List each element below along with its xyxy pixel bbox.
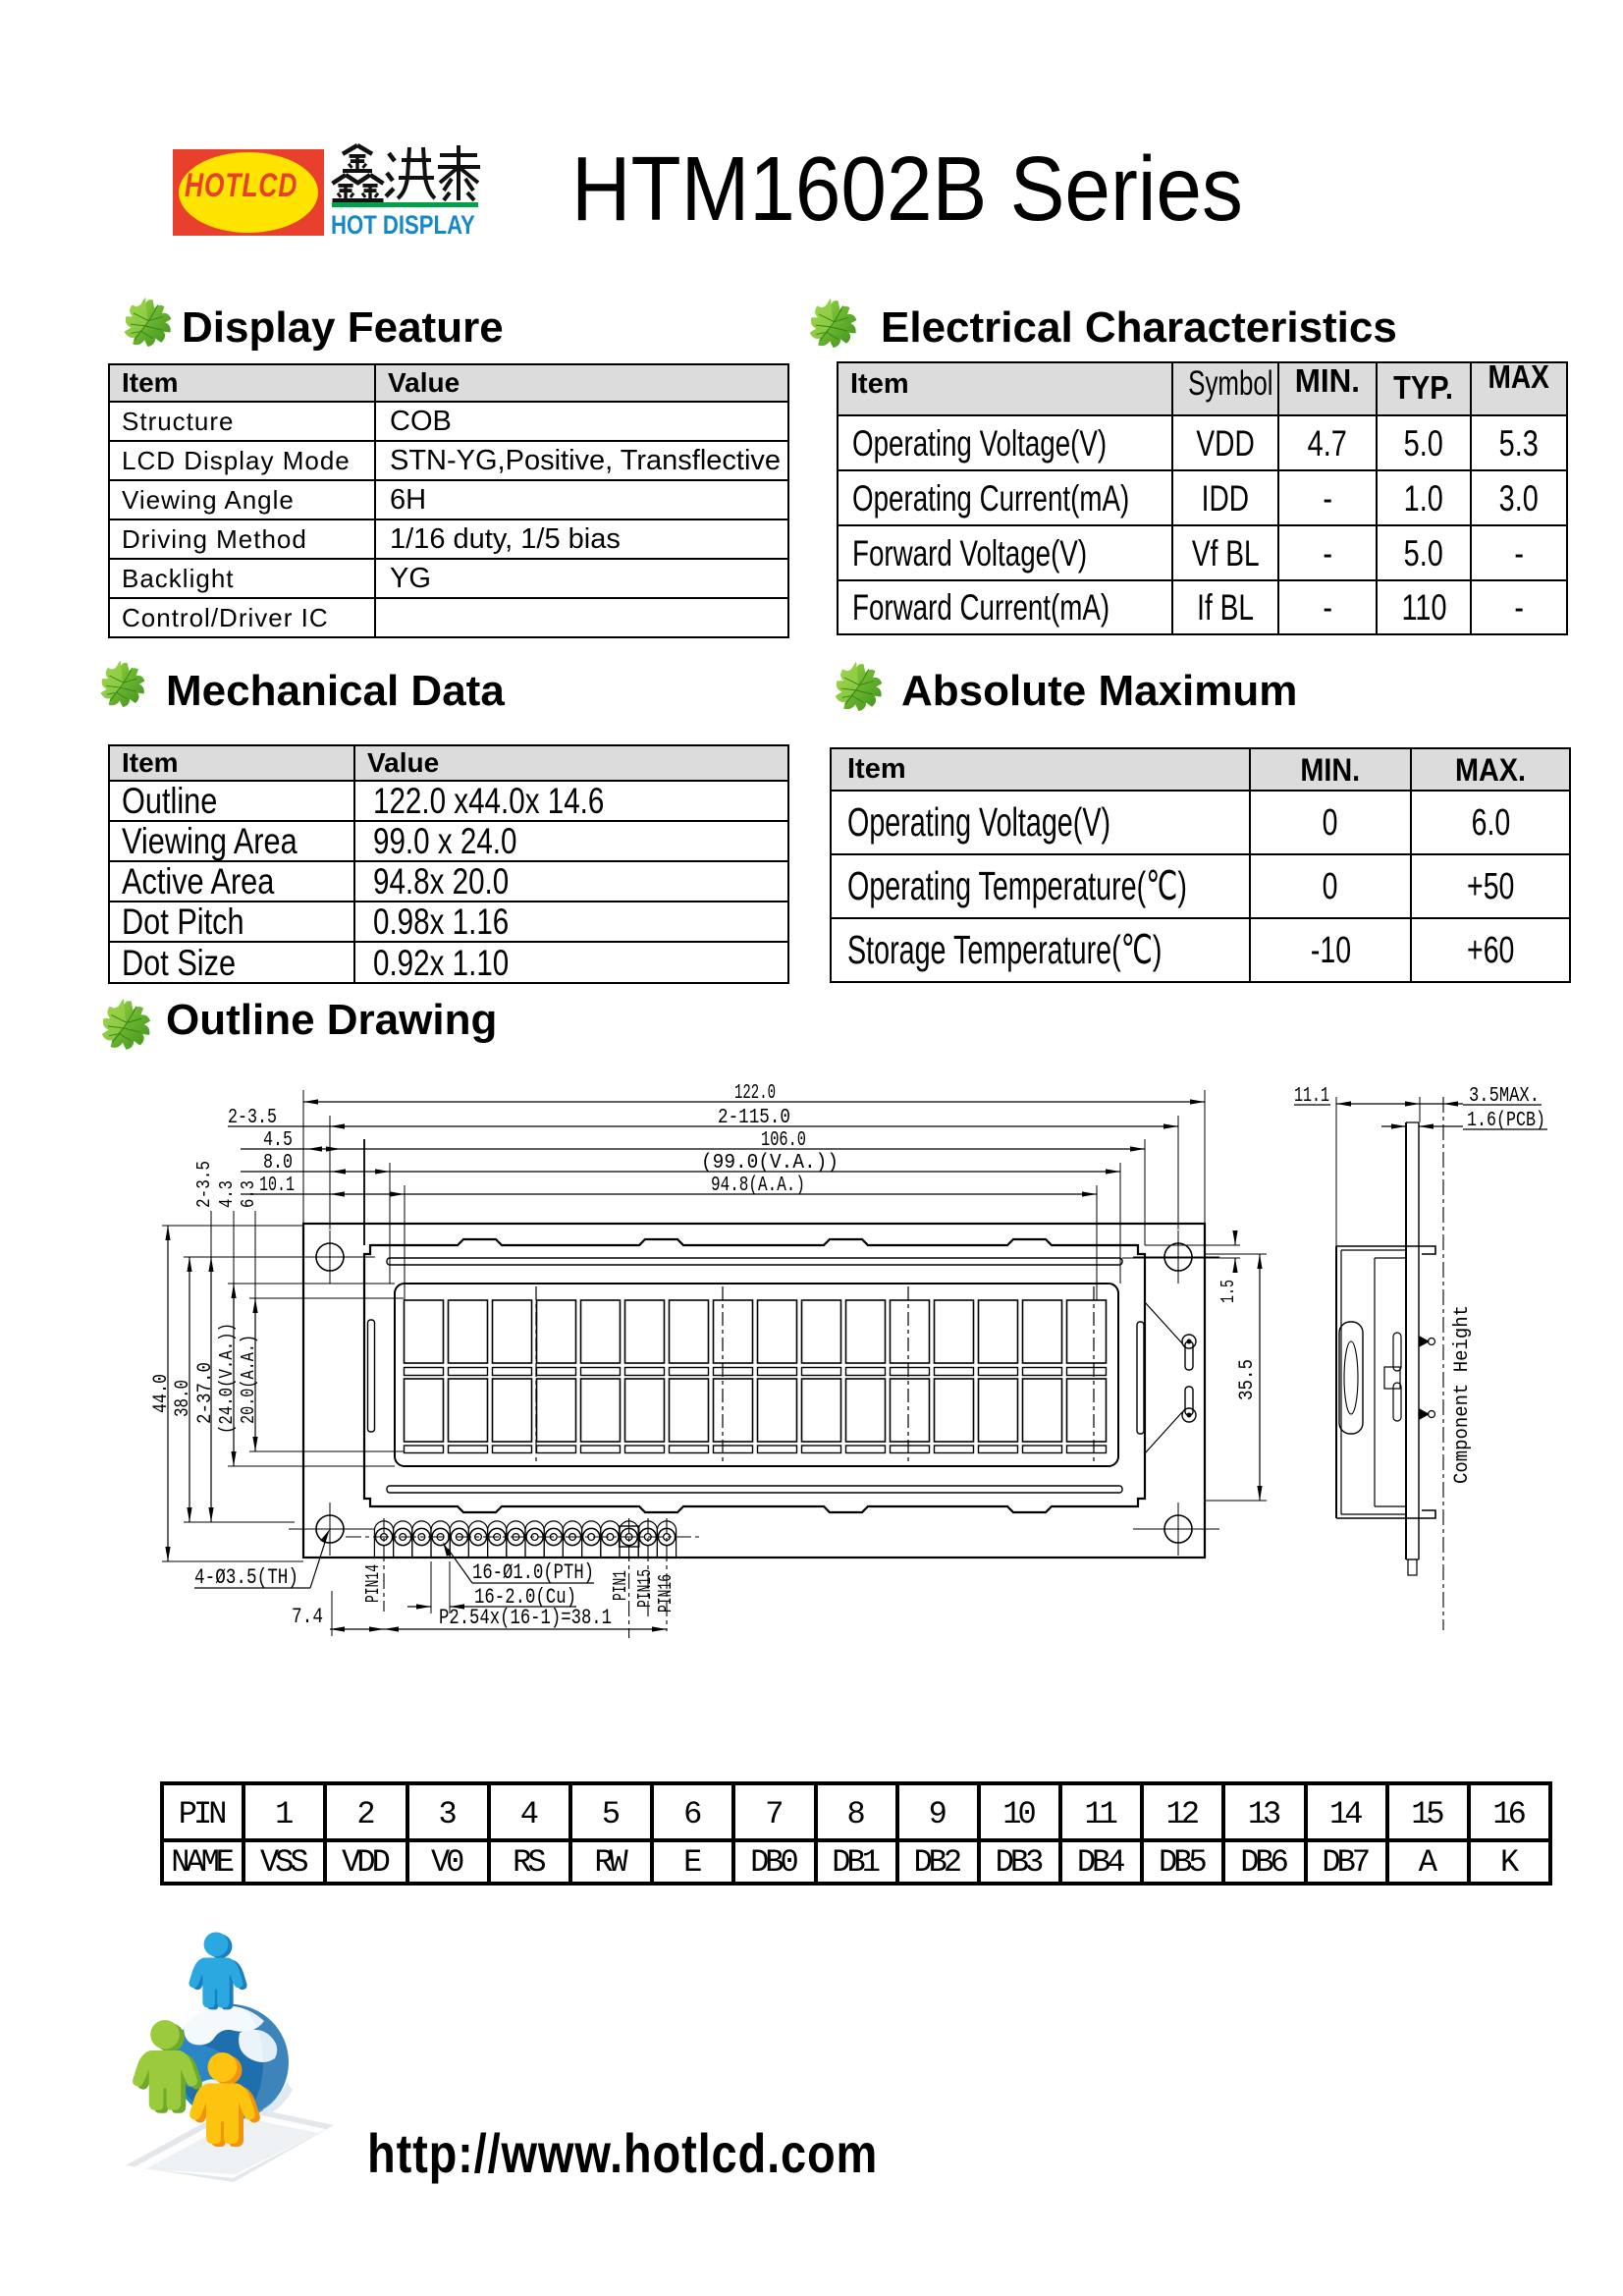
- svg-text:(24.0(V.A.)): (24.0(V.A.)): [216, 1323, 238, 1434]
- svg-text:16-Ø1.0(PTH): 16-Ø1.0(PTH): [472, 1560, 594, 1585]
- svg-text:P2.54x(16-1)=38.1: P2.54x(16-1)=38.1: [439, 1606, 612, 1630]
- svg-text:2-3.5: 2-3.5: [228, 1107, 277, 1129]
- svg-text:44.0: 44.0: [150, 1374, 173, 1413]
- svg-text:20.0(A.A.): 20.0(A.A.): [238, 1335, 259, 1424]
- svg-text:1.5: 1.5: [1217, 1280, 1239, 1303]
- svg-text:PIN15: PIN15: [634, 1569, 656, 1608]
- svg-text:38.0: 38.0: [172, 1380, 194, 1417]
- svg-text:2-3.5: 2-3.5: [193, 1161, 215, 1208]
- svg-text:Component Height: Component Height: [1451, 1305, 1474, 1484]
- svg-text:94.8(A.A.): 94.8(A.A.): [711, 1175, 805, 1197]
- svg-text:4.3: 4.3: [216, 1180, 238, 1208]
- svg-text:8.0: 8.0: [263, 1152, 293, 1175]
- svg-text:PIN16: PIN16: [655, 1574, 676, 1613]
- svg-text:122.0: 122.0: [734, 1082, 776, 1105]
- svg-text:(99.0(V.A.)): (99.0(V.A.)): [701, 1152, 839, 1175]
- svg-text:35.5: 35.5: [1236, 1359, 1259, 1400]
- svg-text:4.5: 4.5: [263, 1129, 293, 1152]
- svg-text:6.3: 6.3: [238, 1180, 259, 1208]
- svg-text:7.4: 7.4: [292, 1605, 323, 1629]
- svg-text:2-115.0: 2-115.0: [718, 1107, 790, 1129]
- svg-text:PIN1: PIN1: [610, 1570, 631, 1601]
- svg-text:106.0: 106.0: [761, 1129, 806, 1152]
- svg-text:2-37.0: 2-37.0: [194, 1362, 217, 1424]
- svg-text:4-Ø3.5(TH): 4-Ø3.5(TH): [194, 1565, 298, 1590]
- svg-text:10.1: 10.1: [259, 1175, 295, 1197]
- svg-text:PIN14: PIN14: [362, 1564, 384, 1603]
